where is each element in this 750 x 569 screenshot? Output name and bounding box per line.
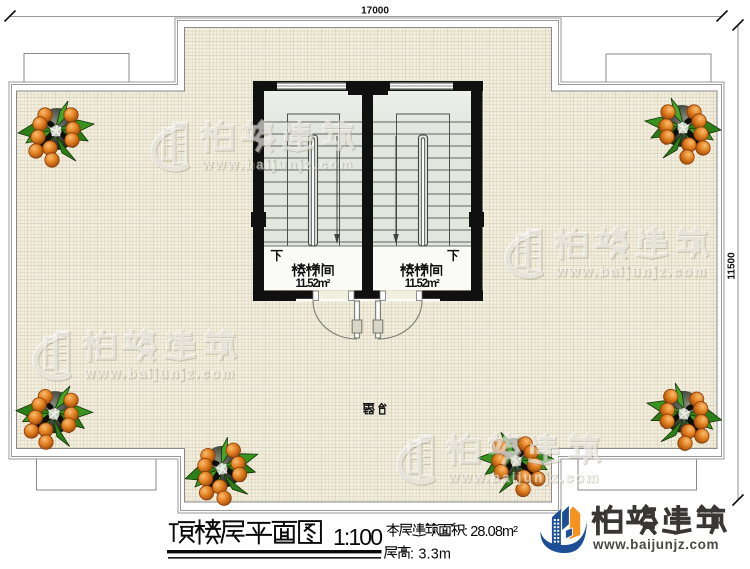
svg-text:11.52m²: 11.52m² bbox=[405, 278, 440, 290]
svg-text:: 3.3m: : 3.3m bbox=[410, 547, 451, 563]
svg-text:11.52m²: 11.52m² bbox=[296, 278, 331, 290]
svg-text:www.baijunjz.com: www.baijunjz.com bbox=[201, 157, 354, 172]
svg-text:17000: 17000 bbox=[361, 6, 389, 17]
svg-text:: 28.08m²: : 28.08m² bbox=[464, 524, 518, 540]
svg-text:www.baijunjz.com: www.baijunjz.com bbox=[592, 537, 719, 552]
svg-text:1:100: 1:100 bbox=[333, 524, 383, 550]
svg-text:11500: 11500 bbox=[727, 252, 738, 280]
